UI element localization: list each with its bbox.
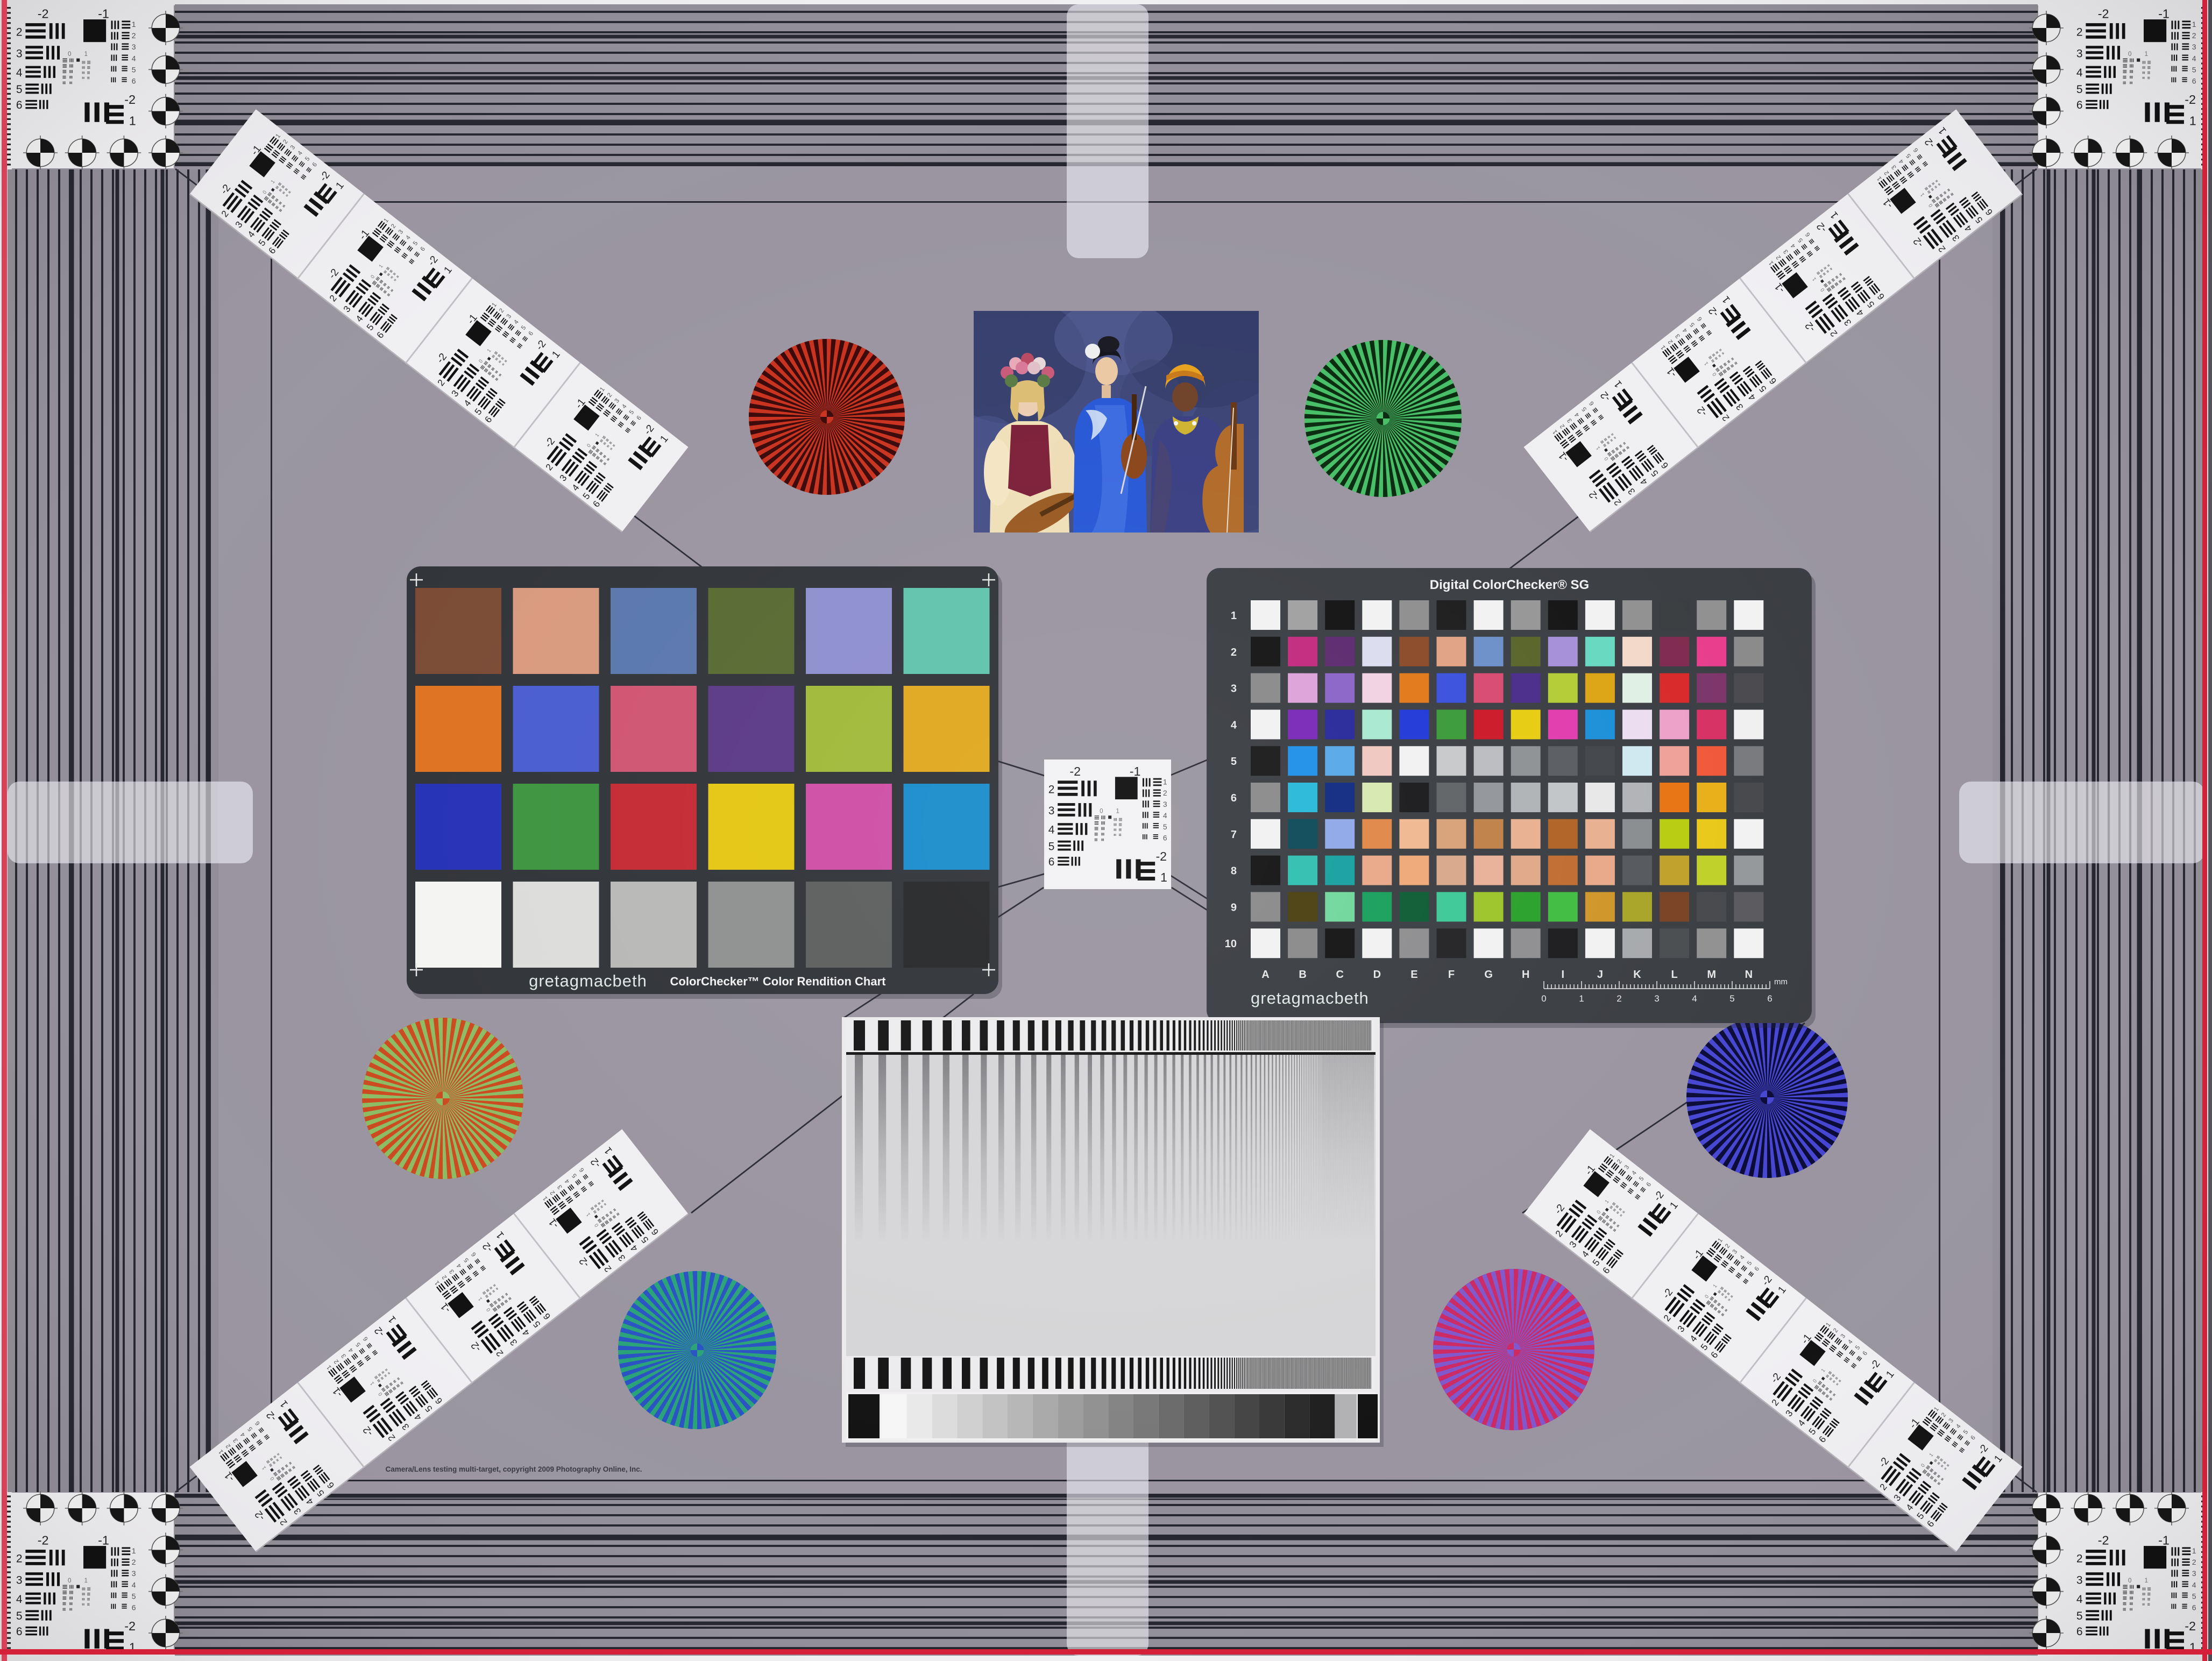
svg-text:Camera/Lens testing multi-targ: Camera/Lens testing multi-target, copyri… bbox=[385, 1465, 642, 1473]
